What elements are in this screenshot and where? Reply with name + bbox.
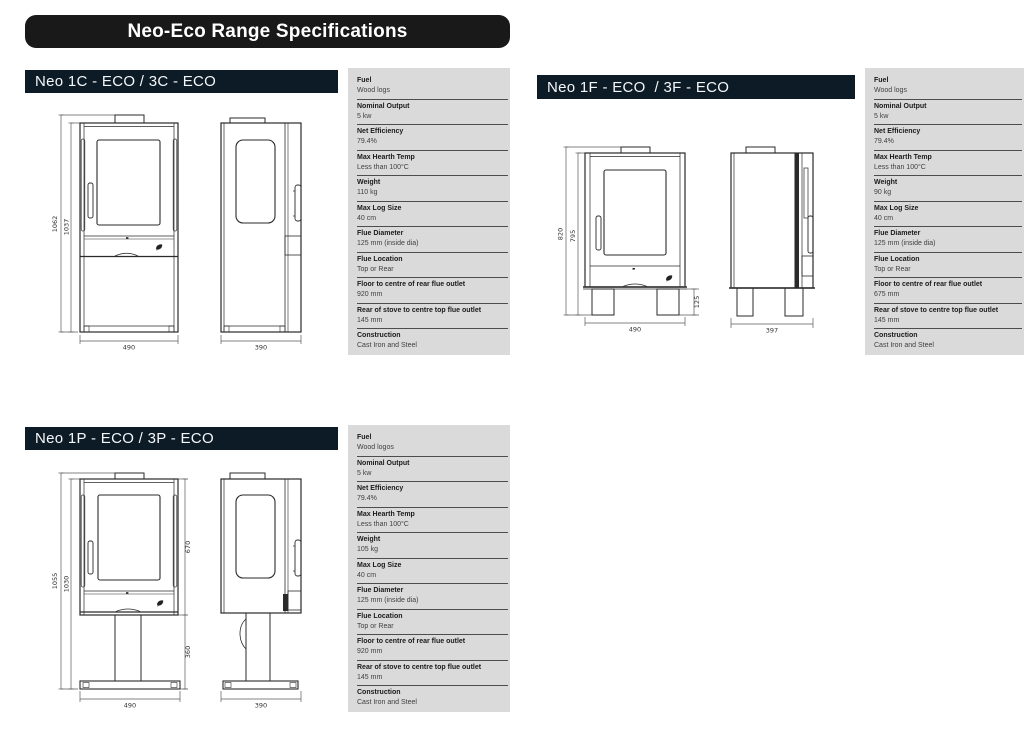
stove-leg <box>785 288 803 316</box>
spec-label: Net Efficiency <box>357 484 508 494</box>
dim-front-width: 490 <box>629 326 641 334</box>
spec-label: Fuel <box>874 76 1022 86</box>
spec-value: 145 mm <box>357 673 508 683</box>
spec-row: Flue Diameter 125 mm (inside dia) <box>357 584 508 610</box>
spec-row: Weight 110 kg <box>357 176 508 202</box>
spec-value: Wood logs <box>357 86 508 96</box>
spec-value: 920 mm <box>357 647 508 657</box>
spec-value: 5 kw <box>357 112 508 122</box>
flue-collar <box>621 147 650 153</box>
spec-row: Fuel Wood logos <box>357 431 508 457</box>
dim-body-height: 1030 <box>63 576 71 593</box>
spec-row: Floor to centre of rear flue outlet 920 … <box>357 635 508 661</box>
spec-label: Floor to centre of rear flue outlet <box>874 280 1022 290</box>
spec-value: Top or Rear <box>874 265 1022 275</box>
spec-label: Fuel <box>357 76 508 86</box>
dim-overall-height: 820 <box>557 228 565 240</box>
stove-leg <box>592 289 614 315</box>
spec-label: Floor to centre of rear flue outlet <box>357 637 508 647</box>
spec-label: Max Log Size <box>874 204 1022 214</box>
spec-label: Fuel <box>357 433 508 443</box>
spec-label: Construction <box>357 688 508 698</box>
dim-front-width: 490 <box>124 702 136 710</box>
spec-label: Max Hearth Temp <box>874 153 1022 163</box>
leaf-logo-icon <box>157 601 163 607</box>
spec-label: Max Log Size <box>357 204 508 214</box>
pedestal <box>246 613 270 681</box>
spec-label: Flue Location <box>357 255 508 265</box>
spec-row: Net Efficiency 79.4% <box>357 482 508 508</box>
spec-row: Max Log Size 40 cm <box>357 559 508 585</box>
stove-body <box>731 153 813 288</box>
door-handle <box>295 540 301 576</box>
stove-body <box>221 479 301 613</box>
spec-value: Cast Iron and Steel <box>357 341 508 351</box>
spec-row: Flue Location Top or Rear <box>874 253 1022 279</box>
spec-row: Max Log Size 40 cm <box>357 202 508 228</box>
base-plate <box>223 681 298 689</box>
spec-value: 90 kg <box>874 188 1022 198</box>
spec-value: 125 mm (inside dia) <box>874 239 1022 249</box>
flue-collar <box>115 473 144 479</box>
flue-collar <box>115 115 144 123</box>
spec-row: Nominal Output 5 kw <box>874 100 1022 126</box>
spec-label: Flue Diameter <box>357 586 508 596</box>
section-header-neo-1p: Neo 1P - ECO / 3P - ECO <box>25 427 338 450</box>
door-glass <box>604 170 666 255</box>
spec-table-neo-1p: Fuel Wood logos Nominal Output 5 kw Net … <box>348 425 510 712</box>
spec-sheet-page: Neo-Eco Range Specifications Neo 1C - EC… <box>0 0 1031 733</box>
spec-row: Nominal Output 5 kw <box>357 100 508 126</box>
spec-value: 110 kg <box>357 188 508 198</box>
spec-row: Rear of stove to centre top flue outlet … <box>357 304 508 330</box>
spec-value: 125 mm (inside dia) <box>357 239 508 249</box>
spec-row: Weight 105 kg <box>357 533 508 559</box>
spec-row: Net Efficiency 79.4% <box>357 125 508 151</box>
stove-body <box>221 123 301 332</box>
pedestal <box>115 615 141 681</box>
spec-row: Max Hearth Temp Less than 100°C <box>357 508 508 534</box>
spec-label: Flue Diameter <box>357 229 508 239</box>
spec-label: Max Log Size <box>357 561 508 571</box>
spec-value: Top or Rear <box>357 265 508 275</box>
leaf-logo-icon <box>156 245 162 251</box>
section-header-neo-1f: Neo 1F - ECO / 3F - ECO <box>537 75 855 99</box>
spec-row: Max Hearth Temp Less than 100°C <box>874 151 1022 177</box>
dim-leg-height: 125 <box>693 296 701 308</box>
spec-row: Floor to centre of rear flue outlet 675 … <box>874 278 1022 304</box>
stove-body <box>80 123 178 332</box>
spec-row: Rear of stove to centre top flue outlet … <box>874 304 1022 330</box>
dim-front-width: 490 <box>123 344 135 352</box>
spec-row: Nominal Output 5 kw <box>357 457 508 483</box>
flue-collar <box>746 147 775 153</box>
spec-value: 5 kw <box>874 112 1022 122</box>
dim-overall-height: 1055 <box>51 573 59 590</box>
dim-firebox-height: 670 <box>184 541 192 553</box>
spec-label: Flue Location <box>357 612 508 622</box>
spec-value: 40 cm <box>357 214 508 224</box>
spec-label: Construction <box>874 331 1022 341</box>
spec-row: Floor to centre of rear flue outlet 920 … <box>357 278 508 304</box>
spec-table-neo-1c: Fuel Wood logs Nominal Output 5 kw Net E… <box>348 68 510 355</box>
spec-label: Rear of stove to centre top flue outlet <box>874 306 1022 316</box>
spec-row: Flue Location Top or Rear <box>357 610 508 636</box>
spec-value: Top or Rear <box>357 622 508 632</box>
spec-row: Weight 90 kg <box>874 176 1022 202</box>
spec-value: 145 mm <box>874 316 1022 326</box>
spec-value: 675 mm <box>874 290 1022 300</box>
stove-leg <box>737 288 753 316</box>
section-header-neo-1c: Neo 1C - ECO / 3C - ECO <box>25 70 338 93</box>
stove-body <box>585 153 685 287</box>
spec-row: Construction Cast Iron and Steel <box>874 329 1022 354</box>
spec-value: 125 mm (inside dia) <box>357 596 508 606</box>
side-glass <box>236 140 275 223</box>
spec-label: Flue Diameter <box>874 229 1022 239</box>
door-handle <box>295 185 301 221</box>
spec-table-neo-1f: Fuel Wood logs Nominal Output 5 kw Net E… <box>865 68 1024 355</box>
spec-value: Less than 100°C <box>874 163 1022 173</box>
spec-label: Floor to centre of rear flue outlet <box>357 280 508 290</box>
spec-value: Wood logos <box>357 443 508 453</box>
dim-body-height: 795 <box>569 230 577 242</box>
spec-row: Max Hearth Temp Less than 100°C <box>357 151 508 177</box>
spec-value: 79.4% <box>357 494 508 504</box>
drawing-neo-1p-side-view: 390 <box>198 463 328 713</box>
spec-value: 79.4% <box>874 137 1022 147</box>
spec-row: Flue Location Top or Rear <box>357 253 508 279</box>
drawing-neo-1c-side-view: 390 <box>198 108 328 363</box>
spec-label: Net Efficiency <box>874 127 1022 137</box>
spec-value: 5 kw <box>357 469 508 479</box>
spec-value: Less than 100°C <box>357 520 508 530</box>
drawing-neo-1c-front-view: 1062 1037 490 <box>38 108 203 363</box>
spec-value: 40 cm <box>357 571 508 581</box>
spec-label: Max Hearth Temp <box>357 153 508 163</box>
spec-label: Nominal Output <box>357 102 508 112</box>
section-title-neo-1f: Neo 1F - ECO / 3F - ECO <box>537 79 729 96</box>
dim-side-depth: 390 <box>255 344 267 352</box>
dim-side-depth: 397 <box>766 327 778 335</box>
section-title-neo-1p: Neo 1P - ECO / 3P - ECO <box>25 430 214 447</box>
flue-collar <box>230 473 265 479</box>
spec-row: Flue Diameter 125 mm (inside dia) <box>874 227 1022 253</box>
dim-body-height: 1037 <box>63 219 71 236</box>
door-handle <box>88 541 93 574</box>
door-handle <box>596 216 601 250</box>
dim-pedestal-height: 360 <box>184 646 192 658</box>
spec-value: 40 cm <box>874 214 1022 224</box>
door-glass <box>98 495 160 580</box>
spec-label: Construction <box>357 331 508 341</box>
spec-row: Construction Cast Iron and Steel <box>357 329 508 354</box>
spec-label: Weight <box>357 535 508 545</box>
spec-value: Wood logs <box>874 86 1022 96</box>
spec-value: 79.4% <box>357 137 508 147</box>
stove-leg <box>657 289 679 315</box>
spec-value: 105 kg <box>357 545 508 555</box>
spec-row: Fuel Wood logs <box>357 74 508 100</box>
spec-label: Flue Location <box>874 255 1022 265</box>
spec-value: 920 mm <box>357 290 508 300</box>
dim-side-depth: 390 <box>255 702 267 710</box>
spec-label: Nominal Output <box>874 102 1022 112</box>
spec-row: Fuel Wood logs <box>874 74 1022 100</box>
drawing-neo-1p-front-view: 1055 1030 670 360 490 <box>38 463 203 713</box>
page-title: Neo-Eco Range Specifications <box>127 21 407 43</box>
spec-label: Max Hearth Temp <box>357 510 508 520</box>
spec-row: Construction Cast Iron and Steel <box>357 686 508 711</box>
drawing-neo-1f-side-view: 397 <box>718 128 848 343</box>
leaf-logo-icon <box>666 276 672 282</box>
dim-overall-height: 1062 <box>51 216 59 233</box>
spec-value: Cast Iron and Steel <box>874 341 1022 351</box>
page-title-bar: Neo-Eco Range Specifications <box>25 15 510 48</box>
spec-value: 145 mm <box>357 316 508 326</box>
spec-label: Net Efficiency <box>357 127 508 137</box>
door-glass <box>97 140 160 225</box>
spec-label: Weight <box>874 178 1022 188</box>
spec-row: Rear of stove to centre top flue outlet … <box>357 661 508 687</box>
spec-label: Weight <box>357 178 508 188</box>
spec-value: Less than 100°C <box>357 163 508 173</box>
base-plate <box>80 681 180 689</box>
spec-row: Net Efficiency 79.4% <box>874 125 1022 151</box>
drawing-neo-1f-front-view: 820 795 125 490 <box>553 118 723 343</box>
section-title-neo-1c: Neo 1C - ECO / 3C - ECO <box>25 73 216 90</box>
spec-label: Nominal Output <box>357 459 508 469</box>
spec-value: Cast Iron and Steel <box>357 698 508 708</box>
spec-label: Rear of stove to centre top flue outlet <box>357 306 508 316</box>
stove-body <box>80 479 178 615</box>
spec-row: Flue Diameter 125 mm (inside dia) <box>357 227 508 253</box>
door-handle <box>808 216 813 253</box>
spec-label: Rear of stove to centre top flue outlet <box>357 663 508 673</box>
door-handle <box>88 183 93 218</box>
side-glass <box>236 495 275 578</box>
spec-row: Max Log Size 40 cm <box>874 202 1022 228</box>
flue-collar <box>230 118 265 123</box>
